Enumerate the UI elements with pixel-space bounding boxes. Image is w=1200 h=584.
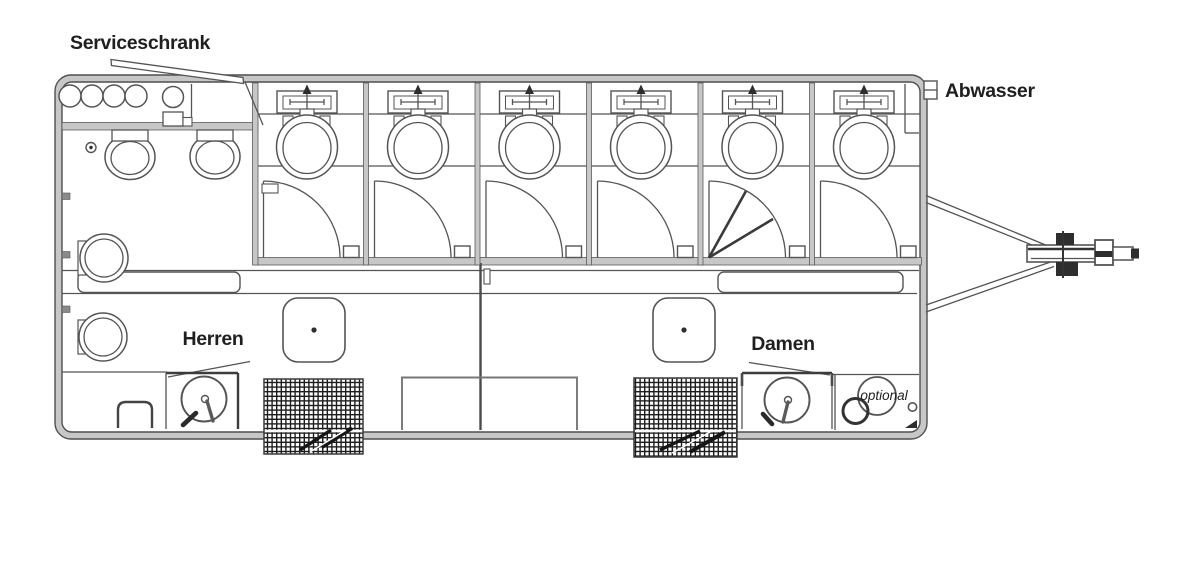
urinal: [190, 130, 240, 179]
wall-bracket: [62, 193, 70, 200]
jockey-clamp: [1056, 262, 1078, 276]
service-cabinet: [59, 60, 263, 127]
washstand: [283, 298, 345, 362]
optional-label: optional: [860, 388, 908, 403]
washstand: [653, 298, 715, 362]
urinal: [105, 130, 155, 180]
round-wall-basin: [78, 313, 127, 361]
toilet-cabin-5: [709, 85, 805, 258]
floor-plan-svg: Serviceschrank Abwasser Herren Damen opt…: [0, 0, 1200, 584]
service-cabinet-label: Serviceschrank: [70, 32, 210, 54]
round-tank: [163, 87, 184, 108]
round-wall-basin: [78, 234, 128, 282]
coupling-neck: [1113, 247, 1133, 260]
door-stop: [484, 269, 490, 284]
sink-unit: [166, 362, 250, 430]
switch-box: [163, 112, 183, 126]
womens-section-label: Damen: [751, 333, 815, 355]
drawbar-hitch: [926, 196, 1139, 313]
coupling-head: [1131, 249, 1139, 259]
toilet-cabin-4: [598, 85, 694, 258]
wall-bracket: [62, 306, 70, 313]
entry-steps-right: [634, 378, 737, 457]
sink-unit: [742, 363, 832, 430]
corridor-rail-right: [718, 272, 903, 293]
folding-door: [709, 181, 805, 258]
waste-water-connector: [924, 81, 937, 99]
toilet-cabin-2: [375, 85, 471, 258]
toilet-cabin-6: [821, 85, 917, 258]
supply-tank: [103, 85, 125, 107]
supply-tank: [59, 85, 81, 107]
toilet-cabin-1: [262, 85, 359, 258]
waste-water-label: Abwasser: [945, 80, 1035, 102]
floor-plan-page: Serviceschrank Abwasser Herren Damen opt…: [0, 0, 1200, 584]
wall-bracket: [62, 252, 70, 259]
toilet-cabin-3: [486, 85, 582, 258]
corner-gusset: [905, 420, 917, 428]
supply-tank: [125, 85, 147, 107]
mens-section-label: Herren: [182, 328, 243, 350]
jockey-clamp: [1056, 233, 1074, 245]
center-bench: [402, 378, 577, 431]
interior-walls: [62, 123, 922, 266]
entry-steps-left: [264, 379, 363, 454]
supply-tank: [81, 85, 103, 107]
floor-urinal: [118, 402, 152, 428]
